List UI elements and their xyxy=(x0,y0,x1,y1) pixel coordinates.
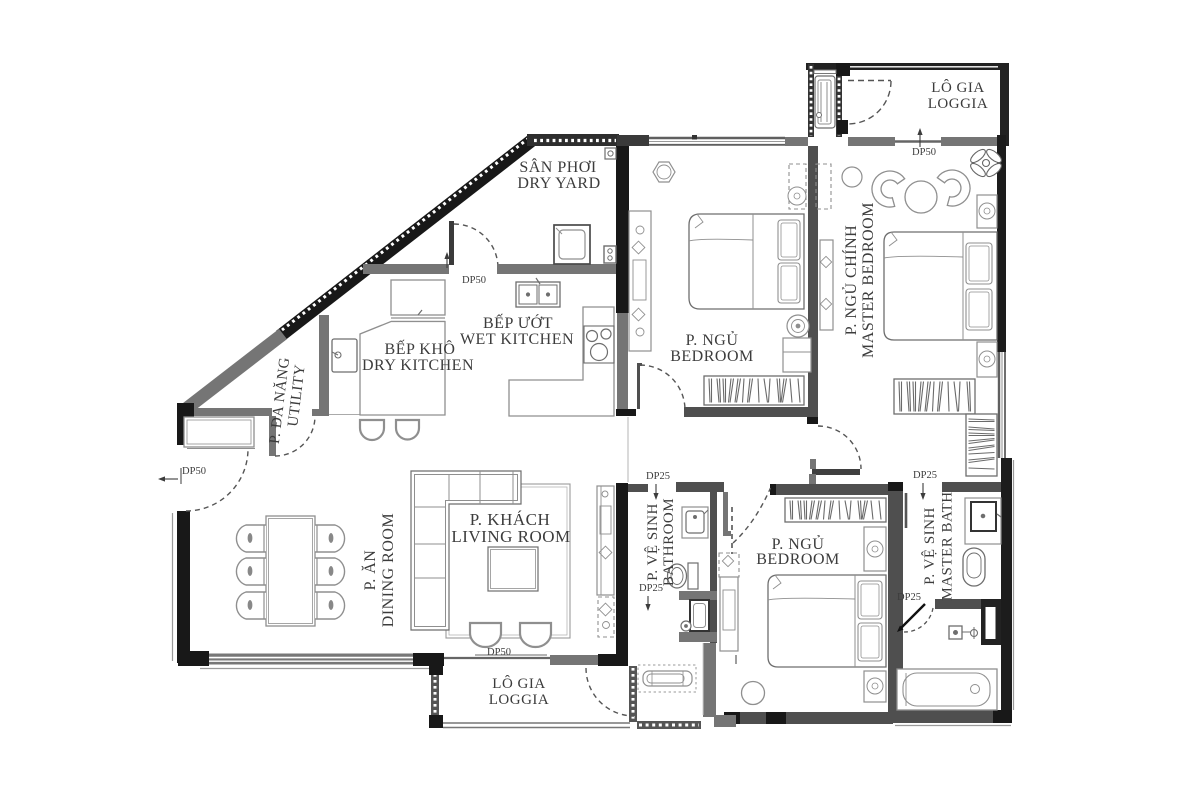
svg-text:BẾP KHÔ: BẾP KHÔ xyxy=(385,339,456,358)
svg-text:LÔ GIA: LÔ GIA xyxy=(931,79,984,96)
svg-text:LOGGIA: LOGGIA xyxy=(928,96,989,112)
svg-text:SÂN PHƠI: SÂN PHƠI xyxy=(519,157,596,176)
svg-text:DP25: DP25 xyxy=(913,470,937,481)
svg-text:BẾP ƯỚT: BẾP ƯỚT xyxy=(483,313,553,332)
svg-text:DP50: DP50 xyxy=(182,466,206,477)
svg-text:DRY YARD: DRY YARD xyxy=(517,175,600,192)
svg-text:DRY KITCHEN: DRY KITCHEN xyxy=(362,357,474,374)
svg-text:DP50: DP50 xyxy=(912,147,936,158)
svg-text:LIVING ROOM: LIVING ROOM xyxy=(451,527,570,546)
svg-text:DP25: DP25 xyxy=(897,592,921,603)
svg-text:DP25: DP25 xyxy=(639,583,663,594)
svg-text:DINING ROOM: DINING ROOM xyxy=(380,513,397,627)
svg-text:P. ĂN: P. ĂN xyxy=(360,550,379,591)
svg-text:MASTER BATH: MASTER BATH xyxy=(940,491,956,600)
svg-text:BEDROOM: BEDROOM xyxy=(670,348,754,365)
svg-text:DP25: DP25 xyxy=(646,471,670,482)
svg-text:P. NGỦ CHÍNH: P. NGỦ CHÍNH xyxy=(841,225,860,335)
svg-text:P. VỆ SINH: P. VỆ SINH xyxy=(644,503,661,581)
svg-text:LOGGIA: LOGGIA xyxy=(489,692,550,708)
svg-text:MASTER BEDROOM: MASTER BEDROOM xyxy=(860,202,877,358)
svg-text:P. NGỦ: P. NGỦ xyxy=(686,330,739,349)
svg-text:BATHROOM: BATHROOM xyxy=(661,498,677,586)
svg-text:DP50: DP50 xyxy=(487,647,511,658)
svg-text:LÔ GIA: LÔ GIA xyxy=(492,675,545,692)
svg-text:WET KITCHEN: WET KITCHEN xyxy=(460,331,574,348)
svg-text:P. VỆ SINH: P. VỆ SINH xyxy=(921,507,938,585)
svg-text:DP50: DP50 xyxy=(462,275,486,286)
svg-text:BEDROOM: BEDROOM xyxy=(756,551,840,568)
